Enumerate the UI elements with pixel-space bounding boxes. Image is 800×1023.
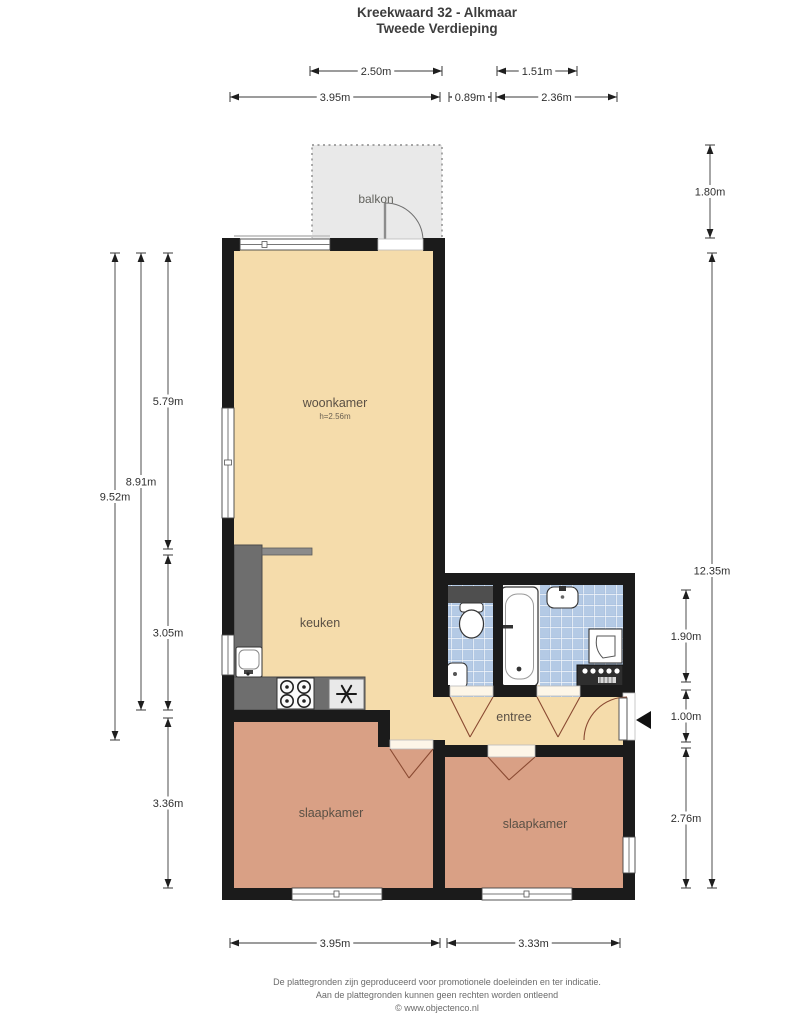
footer-line1: De plattegronden zijn geproduceerd voor … [273,977,601,987]
toilet [460,603,484,638]
bathtub [501,587,538,686]
dimension-label: 1.90m [671,631,702,643]
dimension: 9.52m [97,253,134,740]
dimension: 3.33m [447,937,620,950]
balcony-door-sill [378,239,423,250]
dimension: 2.36m [496,91,617,104]
washbasin [547,586,578,608]
dimension: 3.95m [230,937,440,950]
dimension-label: 3.33m [518,938,549,950]
dimension: 1.90m [668,590,705,682]
window-left-upper [222,408,234,518]
dimension: 3.05m [150,555,187,710]
shower-unit [589,629,622,663]
dimension-label: 3.95m [320,92,351,104]
entrance-arrow-icon [636,711,651,729]
dimension-label: 5.79m [153,396,184,408]
wc-shelf [448,586,493,603]
floorplan-page: Kreekwaard 32 - Alkmaar Tweede Verdiepin… [0,0,800,1023]
dimension-label: 2.50m [361,66,392,78]
balcony-label: balkon [358,192,393,206]
window-left-lower [222,635,234,675]
keuken-label: keuken [300,616,340,630]
dimension: 1.80m [692,145,729,238]
dimension-label: 2.76m [671,813,702,825]
window-bedroom1 [292,888,382,900]
floors [228,244,630,894]
dimension-label: 3.36m [153,798,184,810]
window-bedroom2-side [623,837,635,873]
footer-copyright: © www.objectenco.nl [395,1003,479,1013]
woonkamer-label: woonkamer [302,396,368,410]
window-top [240,239,330,250]
washing-machine [577,665,623,687]
dimension-label: 8.91m [126,476,157,488]
dimension: 1.51m [497,65,577,78]
woonkamer-height-label: h=2.56m [319,412,351,421]
floor-plan-svg: Kreekwaard 32 - Alkmaar Tweede Verdiepin… [0,0,800,1023]
slaapkamer2-label: slaapkamer [503,817,568,831]
dimension-label: 9.52m [100,491,131,503]
bedroom2-door-sill [488,745,535,757]
dimension-label: 1.80m [695,186,726,198]
kitchen-sink [236,647,262,677]
dimension-label: 1.00m [671,711,702,723]
footer-line2: Aan de plattegronden kunnen geen rechten… [316,990,558,1000]
front-door-leaf [619,698,627,740]
dimension: 12.35m [691,253,734,888]
wc-door-sill [450,686,493,696]
dimension-label: 12.35m [694,565,731,577]
dimension: 0.89m [449,91,491,104]
entree-label: entree [496,710,531,724]
dimension-label: 1.51m [522,66,553,78]
dishwasher-icon [329,679,364,709]
balcony: balkon [312,145,442,240]
dimension-label: 3.95m [320,938,351,950]
plan-subtitle: Tweede Verdieping [376,21,497,36]
plan-title: Kreekwaard 32 - Alkmaar [357,5,518,20]
dimension: 5.79m [150,253,187,549]
dimension-label: 0.89m [455,92,486,104]
dimension-label: 2.36m [541,92,572,104]
dimension: 8.91m [123,253,160,710]
dimension: 1.00m [668,690,705,742]
dimension: 2.76m [668,748,705,888]
footer: De plattegronden zijn geproduceerd voor … [273,977,601,1013]
dimension: 2.50m [310,65,442,78]
dimension: 3.95m [230,91,440,104]
wc-corner-sink [447,663,467,688]
dimension-label: 3.05m [153,627,184,639]
bedroom1-door-sill [390,740,433,749]
window-bedroom2 [482,888,572,900]
dimension: 3.36m [150,718,187,888]
bath-door-sill [537,686,580,696]
stove [277,678,314,709]
slaapkamer1-label: slaapkamer [299,806,364,820]
